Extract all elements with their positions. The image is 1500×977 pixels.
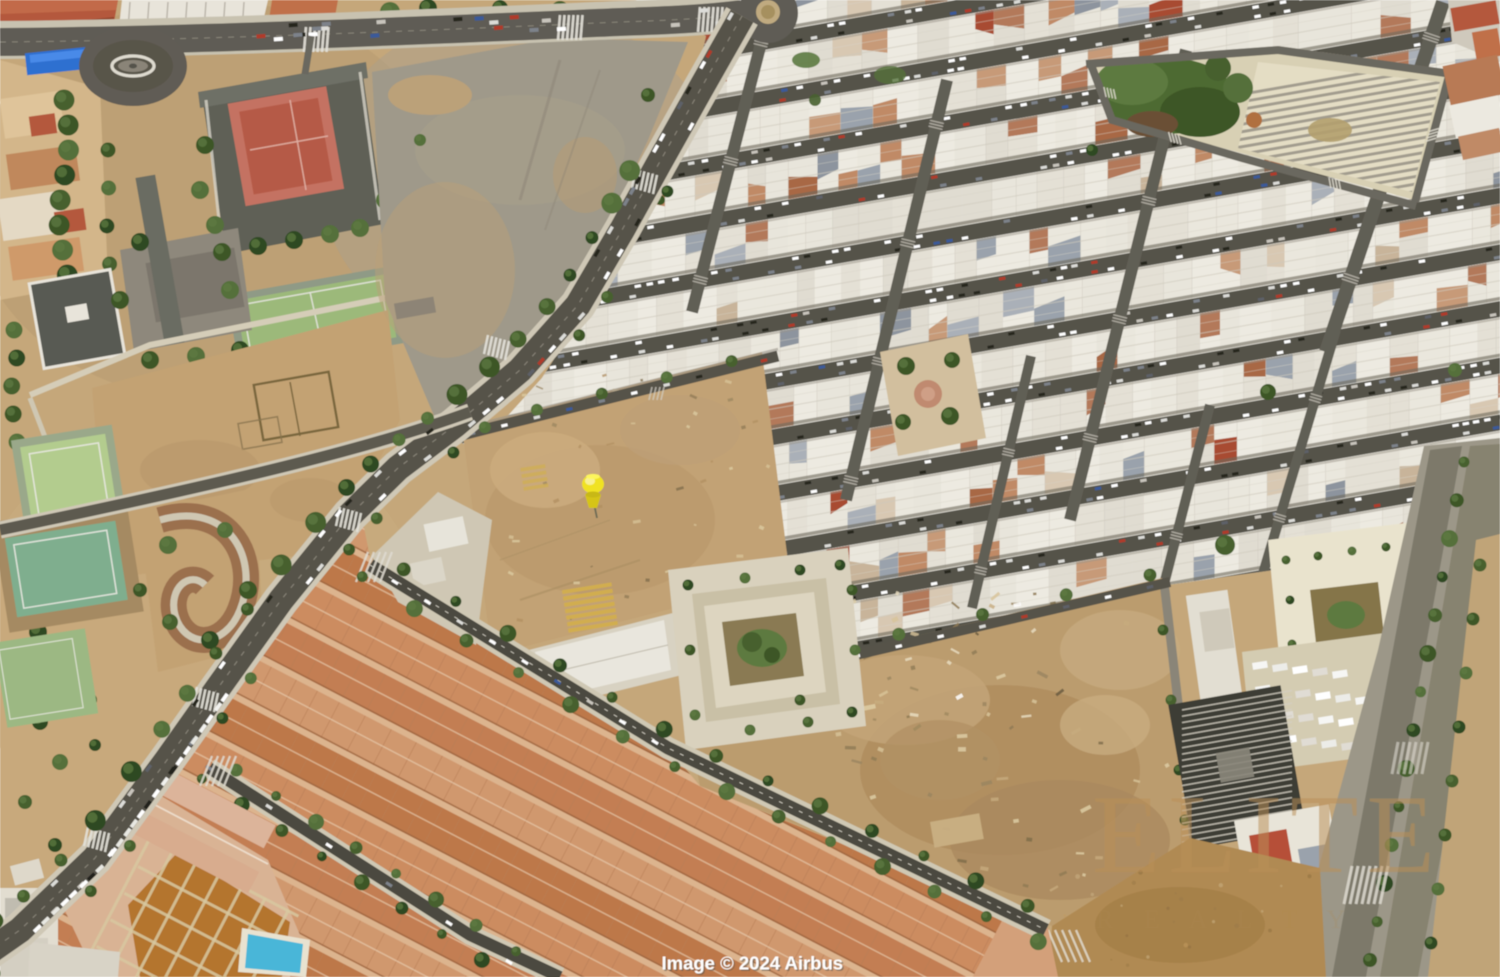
svg-text:R E A L T Y: R E A L T Y — [1096, 905, 1357, 934]
svg-text:Image © 2024 Airbus: Image © 2024 Airbus — [662, 953, 844, 974]
svg-text:ELITE: ELITE — [1092, 773, 1443, 897]
